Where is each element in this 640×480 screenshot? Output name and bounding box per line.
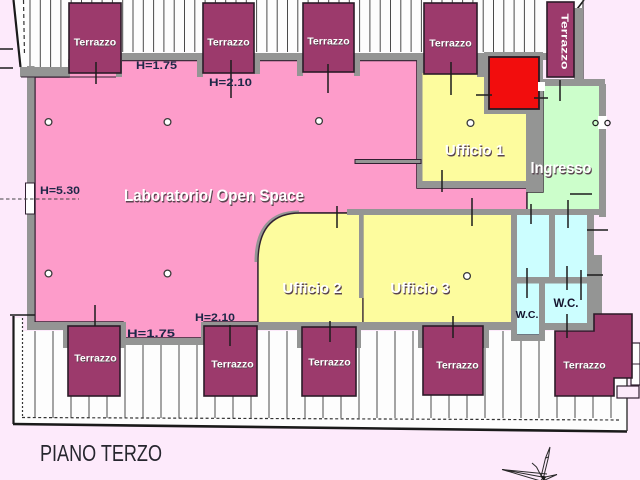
svg-text:Ufficio 1: Ufficio 1 [445, 142, 504, 159]
svg-text:W.C.: W.C. [554, 298, 579, 310]
svg-text:Terrazzo: Terrazzo [563, 360, 605, 372]
svg-text:H=2.10: H=2.10 [209, 77, 252, 89]
svg-text:Terrazzo: Terrazzo [307, 36, 349, 48]
svg-text:Terrazzo: Terrazzo [74, 353, 116, 365]
svg-text:H=2.10: H=2.10 [195, 312, 235, 324]
svg-text:Terrazzo: Terrazzo [436, 360, 478, 372]
svg-text:Terrazzo: Terrazzo [74, 37, 116, 49]
svg-text:Ingresso: Ingresso [531, 160, 592, 177]
svg-text:Terrazzo: Terrazzo [559, 14, 570, 70]
svg-text:Laboratorio/ Open Space: Laboratorio/ Open Space [124, 187, 304, 205]
svg-text:Ufficio 2: Ufficio 2 [282, 280, 341, 297]
svg-text:Terrazzo: Terrazzo [211, 359, 253, 371]
svg-text:Ufficio 3: Ufficio 3 [390, 280, 449, 297]
svg-text:H=1.75: H=1.75 [127, 328, 175, 340]
svg-text:PIANO TERZO: PIANO TERZO [40, 440, 162, 466]
svg-text:Terrazzo: Terrazzo [308, 357, 350, 369]
svg-text:Terrazzo: Terrazzo [429, 38, 471, 50]
svg-text:Terrazzo: Terrazzo [207, 37, 249, 49]
svg-text:H=1.75: H=1.75 [136, 60, 177, 72]
svg-text:W.C.: W.C. [516, 309, 539, 321]
svg-text:H=5.30: H=5.30 [40, 185, 80, 197]
